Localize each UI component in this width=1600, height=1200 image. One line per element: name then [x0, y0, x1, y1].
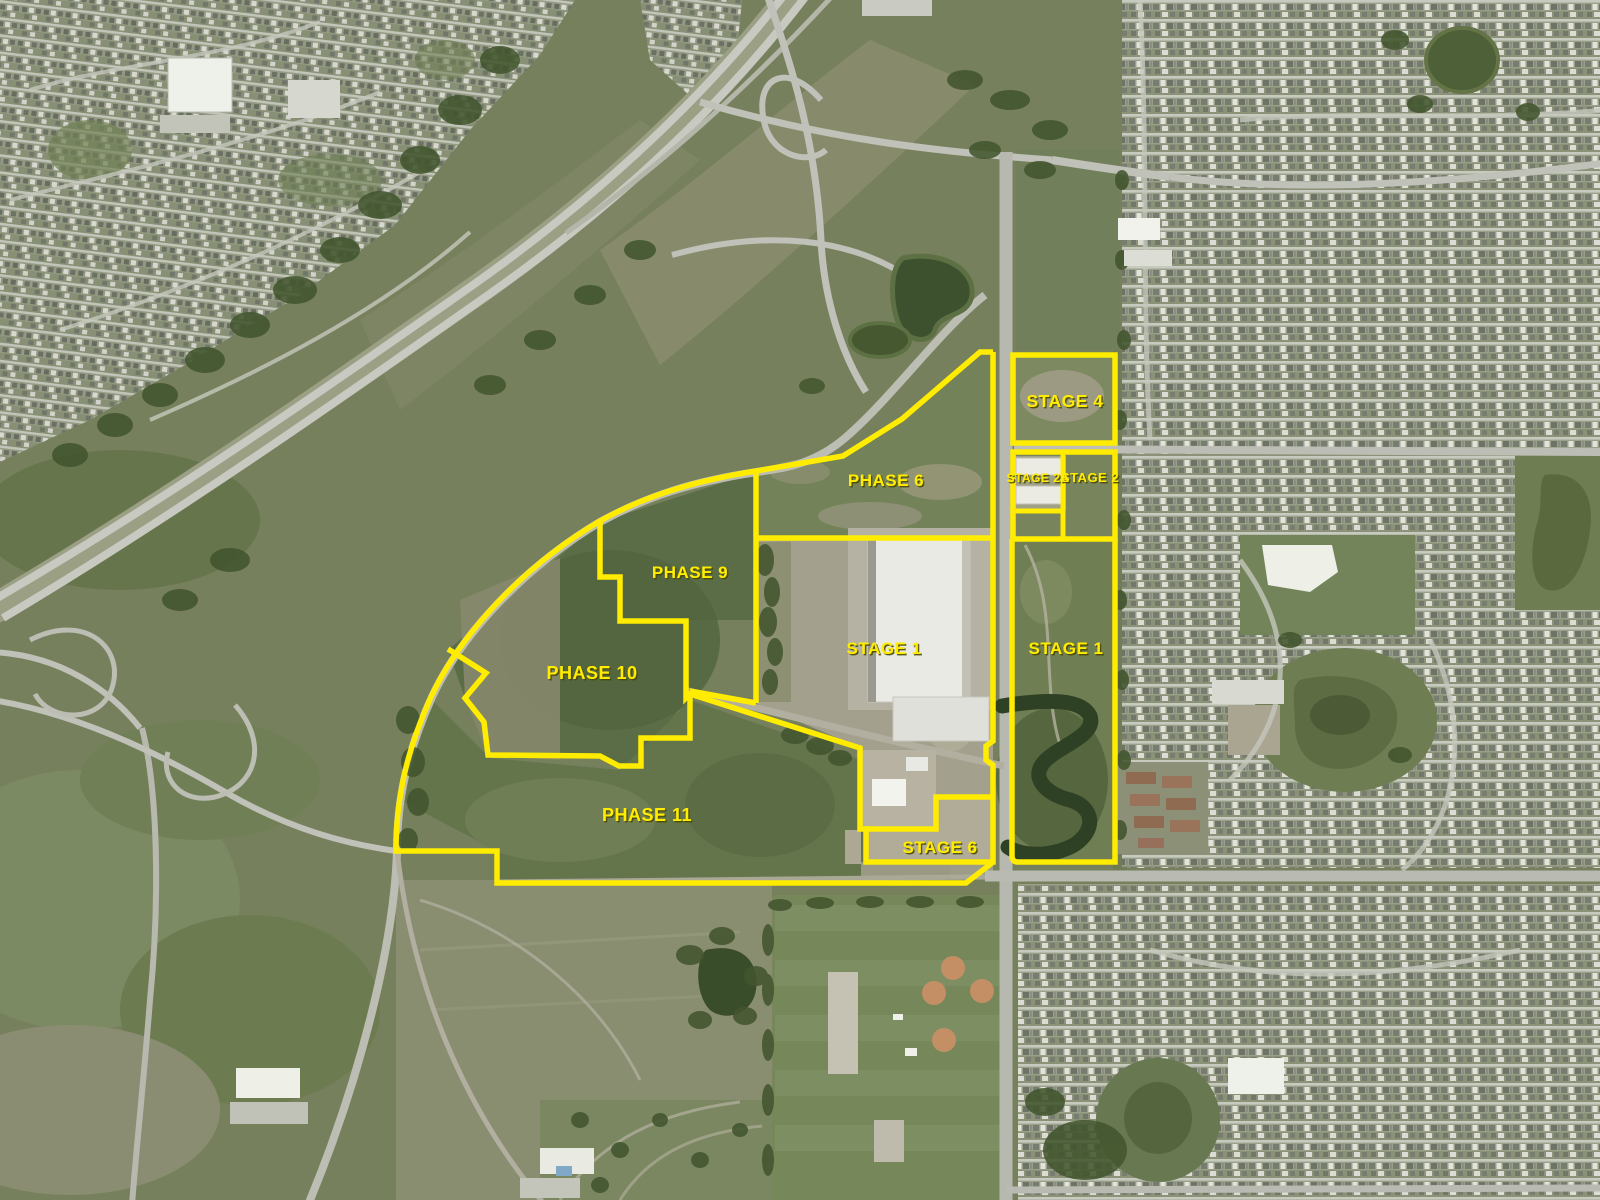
- rec-centre-west: [236, 1068, 300, 1098]
- label-phase-10: PHASE 10: [546, 663, 637, 683]
- label-stage-4: STAGE 4: [1026, 391, 1103, 411]
- nw-commercial: [288, 80, 340, 118]
- satellite-map-image: PHASE 6 PHASE 9 PHASE 10 PHASE 11 STAGE …: [0, 0, 1600, 1200]
- label-phase-11: PHASE 11: [602, 805, 692, 825]
- label-stage-1-west: STAGE 1: [847, 639, 922, 658]
- label-phase-6: PHASE 6: [848, 471, 924, 490]
- community-building: [1212, 680, 1284, 704]
- label-stage-1-east: STAGE 1: [1029, 639, 1104, 658]
- pond-interchange-small: [850, 323, 910, 357]
- br-white-building: [1228, 1058, 1284, 1094]
- aerial-map: PHASE 6 PHASE 9 PHASE 10 PHASE 11 STAGE …: [0, 0, 1600, 1200]
- ne-commercial-1: [1118, 218, 1160, 240]
- nw-bigbox-store: [168, 58, 232, 112]
- warehouse-large: [868, 536, 970, 702]
- warehouse-south: [893, 697, 989, 741]
- sports-parking-lot: [828, 972, 858, 1074]
- label-phase-9: PHASE 9: [652, 563, 728, 582]
- ne-commercial-2: [1124, 250, 1172, 266]
- pond-bottom-right: [1124, 1082, 1192, 1154]
- retail-building: [872, 779, 906, 806]
- nw-parking-lot: [160, 115, 230, 133]
- stage2a-warehouse-2: [1016, 486, 1063, 504]
- pond-top-right: [1426, 28, 1498, 92]
- bottom-right-road: [1006, 1188, 1600, 1190]
- retail-small-building: [906, 757, 928, 771]
- sport-courts: [874, 1120, 904, 1162]
- label-stage-6: STAGE 6: [903, 838, 978, 857]
- top-parking-lot: [862, 0, 932, 16]
- pond-tiny: [799, 378, 825, 394]
- label-stage-2: STAGE 2: [1061, 470, 1119, 485]
